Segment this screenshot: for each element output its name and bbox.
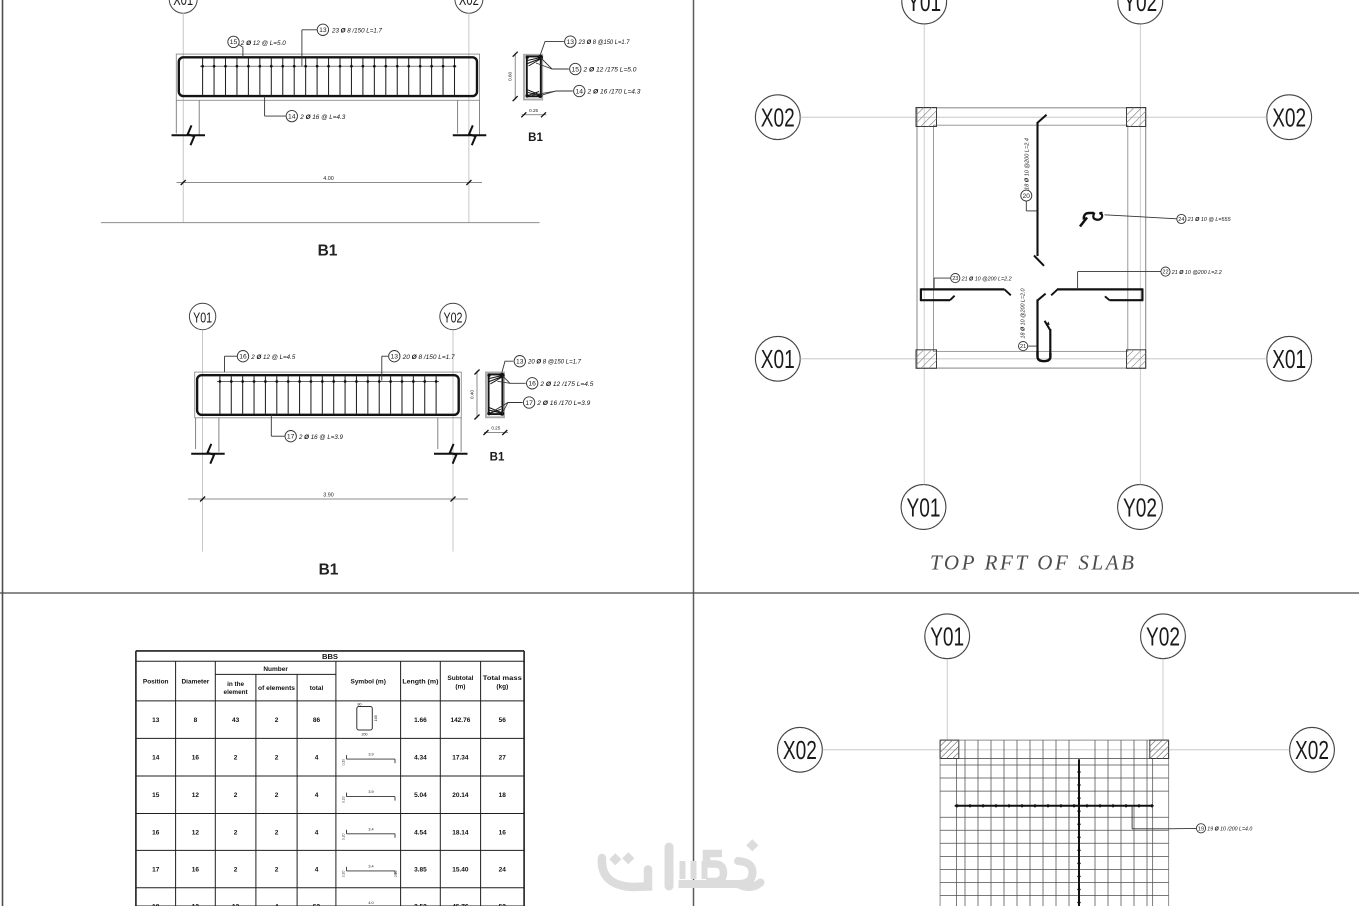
svg-text:2: 2 bbox=[275, 829, 279, 836]
svg-text:5.04: 5.04 bbox=[414, 792, 427, 799]
svg-text:X01: X01 bbox=[761, 344, 795, 374]
svg-text:15: 15 bbox=[230, 39, 238, 46]
svg-text:2 Ø 16 @ L=3.9: 2 Ø 16 @ L=3.9 bbox=[298, 434, 343, 441]
svg-text:165: 165 bbox=[374, 715, 378, 721]
svg-text:13: 13 bbox=[567, 39, 575, 46]
svg-text:0.20: 0.20 bbox=[342, 833, 346, 840]
svg-text:Symbol (m): Symbol (m) bbox=[350, 679, 385, 686]
svg-text:16: 16 bbox=[192, 755, 200, 762]
svg-text:86: 86 bbox=[313, 717, 321, 724]
svg-text:21 Ø 10 @200 L=2.2: 21 Ø 10 @200 L=2.2 bbox=[961, 276, 1012, 282]
svg-text:4: 4 bbox=[315, 755, 319, 762]
svg-text:23: 23 bbox=[952, 276, 958, 282]
svg-text:4.0: 4.0 bbox=[368, 901, 373, 905]
svg-text:17: 17 bbox=[525, 400, 533, 407]
svg-text:17: 17 bbox=[152, 866, 160, 873]
svg-text:Y01: Y01 bbox=[193, 310, 212, 326]
svg-text:2: 2 bbox=[234, 755, 238, 762]
svg-text:3.4: 3.4 bbox=[368, 827, 373, 831]
svg-text:15.40: 15.40 bbox=[452, 866, 469, 873]
svg-text:2 Ø 16 /170 L=3.9: 2 Ø 16 /170 L=3.9 bbox=[536, 400, 591, 407]
svg-text:24: 24 bbox=[1178, 217, 1184, 223]
svg-text:2: 2 bbox=[234, 829, 238, 836]
svg-text:14: 14 bbox=[152, 755, 160, 762]
svg-text:X01: X01 bbox=[1272, 344, 1306, 374]
svg-text:2 Ø 12 /175 L=5.0: 2 Ø 12 /175 L=5.0 bbox=[582, 67, 637, 74]
svg-text:BBS: BBS bbox=[322, 652, 338, 661]
svg-text:27: 27 bbox=[499, 755, 507, 762]
svg-text:element: element bbox=[224, 689, 249, 696]
svg-text:Subtotal: Subtotal bbox=[447, 675, 473, 682]
svg-text:X02: X02 bbox=[459, 0, 479, 9]
svg-text:17: 17 bbox=[287, 434, 295, 441]
svg-text:21 Ø 10 @200 L=2.2: 21 Ø 10 @200 L=2.2 bbox=[1171, 270, 1222, 276]
svg-text:18.14: 18.14 bbox=[452, 829, 469, 836]
svg-text:4: 4 bbox=[315, 829, 319, 836]
svg-text:0.20: 0.20 bbox=[394, 870, 398, 877]
svg-text:21: 21 bbox=[1020, 344, 1026, 350]
svg-text:4: 4 bbox=[315, 792, 319, 799]
svg-text:15: 15 bbox=[572, 66, 580, 73]
svg-text:Position: Position bbox=[143, 679, 169, 686]
svg-text:(kg): (kg) bbox=[496, 684, 508, 691]
svg-text:2: 2 bbox=[275, 866, 279, 873]
svg-text:20: 20 bbox=[1023, 193, 1031, 200]
svg-text:Y02: Y02 bbox=[444, 310, 463, 326]
svg-text:12: 12 bbox=[192, 792, 200, 799]
svg-text:17.34: 17.34 bbox=[452, 755, 469, 762]
svg-text:18 Ø 10 @200 L=2.4: 18 Ø 10 @200 L=2.4 bbox=[1025, 138, 1031, 190]
svg-text:0.25: 0.25 bbox=[529, 108, 538, 113]
svg-text:16: 16 bbox=[152, 829, 160, 836]
svg-text:X01: X01 bbox=[173, 0, 193, 9]
svg-text:4.34: 4.34 bbox=[414, 755, 427, 762]
svg-text:16: 16 bbox=[192, 866, 200, 873]
svg-text:0.40: 0.40 bbox=[469, 390, 474, 399]
svg-text:B1: B1 bbox=[319, 562, 339, 579]
svg-text:(m): (m) bbox=[455, 684, 465, 691]
svg-text:B1: B1 bbox=[318, 243, 338, 260]
svg-text:12: 12 bbox=[192, 829, 200, 836]
svg-text:16: 16 bbox=[239, 354, 247, 361]
svg-text:of elements: of elements bbox=[258, 685, 295, 692]
svg-text:4.54: 4.54 bbox=[414, 829, 427, 836]
svg-text:20 Ø 8 /150 L=1.7: 20 Ø 8 /150 L=1.7 bbox=[402, 354, 455, 361]
svg-text:56: 56 bbox=[499, 717, 507, 724]
svg-text:24: 24 bbox=[499, 866, 507, 873]
svg-text:2 Ø 12 @ L=5.0: 2 Ø 12 @ L=5.0 bbox=[240, 40, 286, 47]
svg-text:4.00: 4.00 bbox=[323, 176, 334, 182]
svg-text:16: 16 bbox=[499, 829, 507, 836]
svg-text:14: 14 bbox=[576, 88, 584, 95]
svg-text:13: 13 bbox=[319, 27, 327, 34]
svg-text:3.9: 3.9 bbox=[368, 753, 373, 757]
svg-text:13: 13 bbox=[516, 359, 524, 366]
svg-text:0.20: 0.20 bbox=[342, 759, 346, 766]
svg-text:19: 19 bbox=[1198, 826, 1204, 832]
svg-text:3.4: 3.4 bbox=[368, 864, 373, 868]
svg-text:19 Ø 10 /200 L=4.0: 19 Ø 10 /200 L=4.0 bbox=[1207, 827, 1252, 833]
svg-text:2: 2 bbox=[234, 866, 238, 873]
svg-text:23 Ø 8 /150 L=1.7: 23 Ø 8 /150 L=1.7 bbox=[331, 27, 382, 34]
svg-text:18 Ø 10 @200 L=2.0: 18 Ø 10 @200 L=2.0 bbox=[1020, 289, 1026, 339]
svg-text:Diameter: Diameter bbox=[181, 679, 209, 686]
svg-text:23 Ø 8 @150 L=1.7: 23 Ø 8 @150 L=1.7 bbox=[578, 39, 630, 46]
svg-text:20.14: 20.14 bbox=[452, 792, 469, 799]
svg-text:16: 16 bbox=[528, 381, 536, 388]
svg-text:3.85: 3.85 bbox=[414, 866, 427, 873]
svg-text:142.76: 142.76 bbox=[450, 717, 470, 724]
svg-text:0.25: 0.25 bbox=[491, 426, 500, 431]
svg-text:Y02: Y02 bbox=[1123, 492, 1157, 522]
svg-text:8: 8 bbox=[194, 717, 198, 724]
svg-text:Total mass: Total mass bbox=[483, 675, 522, 682]
svg-text:Number: Number bbox=[263, 666, 288, 673]
svg-text:22: 22 bbox=[1162, 270, 1168, 276]
svg-text:2 Ø 12 @ L=4.5: 2 Ø 12 @ L=4.5 bbox=[250, 354, 295, 361]
svg-text:total: total bbox=[310, 685, 324, 692]
svg-text:13: 13 bbox=[152, 717, 160, 724]
svg-text:Y02: Y02 bbox=[1146, 622, 1180, 652]
svg-text:14: 14 bbox=[288, 113, 296, 120]
svg-text:3.9: 3.9 bbox=[368, 790, 373, 794]
svg-text:15: 15 bbox=[152, 792, 160, 799]
svg-text:Y02: Y02 bbox=[1123, 0, 1157, 17]
svg-text:2 Ø 12 /175 L=4.5: 2 Ø 12 /175 L=4.5 bbox=[539, 381, 594, 388]
svg-text:20 Ø 8 @150 L=1.7: 20 Ø 8 @150 L=1.7 bbox=[527, 359, 582, 366]
svg-text:80: 80 bbox=[358, 702, 362, 706]
svg-text:43: 43 bbox=[232, 717, 240, 724]
svg-text:B1: B1 bbox=[490, 452, 505, 464]
svg-text:2: 2 bbox=[275, 792, 279, 799]
svg-text:B1: B1 bbox=[528, 132, 543, 144]
svg-text:0.20: 0.20 bbox=[342, 796, 346, 803]
svg-text:Y01: Y01 bbox=[907, 492, 941, 522]
svg-text:3.90: 3.90 bbox=[323, 492, 334, 498]
svg-text:2: 2 bbox=[275, 755, 279, 762]
svg-text:2 Ø 16 @ L=4.3: 2 Ø 16 @ L=4.3 bbox=[299, 114, 345, 121]
svg-text:in the: in the bbox=[227, 681, 244, 688]
svg-text:X02: X02 bbox=[1272, 103, 1306, 133]
svg-text:200: 200 bbox=[362, 732, 368, 736]
svg-text:X02: X02 bbox=[783, 735, 817, 765]
svg-text:X02: X02 bbox=[761, 103, 795, 133]
svg-text:18: 18 bbox=[499, 792, 507, 799]
svg-text:Y01: Y01 bbox=[907, 0, 941, 17]
svg-text:13: 13 bbox=[391, 354, 399, 361]
svg-text:2: 2 bbox=[234, 792, 238, 799]
svg-text:Y01: Y01 bbox=[930, 622, 964, 652]
svg-text:4: 4 bbox=[315, 866, 319, 873]
svg-text:1.66: 1.66 bbox=[414, 717, 427, 724]
svg-text:21 Ø 10 @ L=555: 21 Ø 10 @ L=555 bbox=[1187, 217, 1231, 223]
svg-text:2: 2 bbox=[275, 717, 279, 724]
svg-text:0.60: 0.60 bbox=[508, 71, 513, 80]
svg-text:0.20: 0.20 bbox=[342, 870, 346, 877]
svg-text:2 Ø 16 /170 L=4.3: 2 Ø 16 /170 L=4.3 bbox=[586, 89, 641, 96]
svg-text:X02: X02 bbox=[1295, 735, 1329, 765]
svg-text:Length (m): Length (m) bbox=[402, 679, 438, 686]
